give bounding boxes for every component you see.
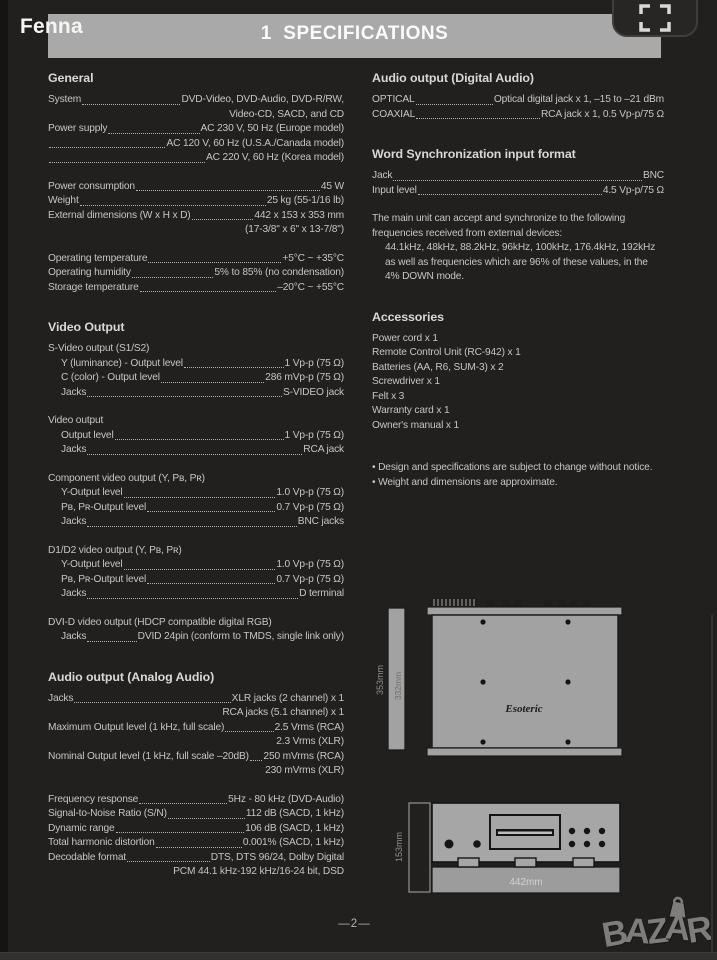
dot-leader [49,147,165,148]
spec-line: Frequency response5Hz - 80 kHz (DVD-Audi… [48,793,344,808]
photo-right-edge [711,615,713,955]
spec-line: Video-CD, SACD, and CD [48,108,344,123]
spacer [48,166,344,180]
spec-line: External dimensions (W x H x D)442 x 153… [48,209,344,224]
front-knob [473,840,481,848]
viewer-label: Fenna [20,15,83,39]
right-column: Audio output (Digital Audio)OPTICALOptic… [372,64,664,490]
rear-connectors [486,600,592,607]
dot-leader [393,180,642,181]
spec-line: JacksXLR jacks (2 channel) x 1 [48,692,344,707]
spec-text-line: frequencies received from external devic… [372,227,664,242]
spec-text-line: Component video output (Y, Pʙ, Pʀ) [48,472,344,487]
dot-leader [148,262,281,263]
header-bar: 1 SPECIFICATIONS [48,14,661,58]
spacer [48,238,344,252]
dot-leader [87,526,297,527]
spec-section: AccessoriesPower cord x 1Remote Control … [372,311,664,491]
spec-line: Dynamic range106 dB (SACD, 1 kHz) [48,822,344,837]
spec-text-line: Owner's manual x 1 [372,419,664,434]
dot-leader [147,511,275,512]
spec-line: 2.3 Vrms (XLR) [48,735,344,750]
spec-line: JackBNC [372,169,664,184]
dot-leader [74,702,230,703]
section-heading: Accessories [372,311,664,324]
dot-leader [124,497,276,498]
spacer [48,602,344,616]
spacer [372,198,664,212]
bazar-letter: R [685,909,713,952]
dot-leader [127,861,210,862]
spec-line: Power consumption45 W [48,180,344,195]
spec-line: RCA jacks (5.1 channel) x 1 [48,706,344,721]
spec-line: Operating humidity5% to 85% (no condensa… [48,266,344,281]
spec-line: SystemDVD-Video, DVD-Audio, DVD-R/RW, [48,93,344,108]
spec-line: AC 220 V, 60 Hz (Korea model) [48,151,344,166]
spec-text-line: Batteries (AA, R6, SUM-3) x 2 [372,361,664,376]
spec-line: Y (luminance) - Output level1 Vp-p (75 Ω… [48,357,344,372]
spec-text-line: 44.1kHz, 48kHz, 88.2kHz, 96kHz, 100kHz, … [372,241,664,256]
dot-leader [87,598,298,599]
page-left-edge [0,0,8,960]
spec-section: GeneralSystemDVD-Video, DVD-Audio, DVD-R… [48,72,344,295]
spec-line: COAXIALRCA jack x 1, 0.5 Vp-p/75 Ω [372,108,664,123]
spec-line: PCM 44.1 kHz-192 kHz/16-24 bit, DSD [48,865,344,880]
spec-line: Input level4.5 Vp-p/75 Ω [372,184,664,199]
dot-leader [147,583,275,584]
top-view-diagram: 353mm 332mm Esoteric [374,596,626,762]
spec-text-line: Warranty card x 1 [372,404,664,419]
dot-leader [136,190,320,191]
spec-line: AC 120 V, 60 Hz (U.S.A./Canada model) [48,137,344,152]
section-heading: Video Output [48,321,344,334]
dot-leader [87,396,282,397]
spec-line: JacksDVID 24pin (conform to TMDS, single… [48,630,344,645]
spec-line: JacksRCA jack [48,443,344,458]
dot-leader [140,291,277,292]
spec-line: Operating temperature+5°C ~ +35°C [48,252,344,267]
dot-leader [156,847,242,848]
spec-text-line: • Design and specifications are subject … [372,461,664,476]
esoteric-logo: Esoteric [504,703,542,715]
spec-line: Power supplyAC 230 V, 50 Hz (Europe mode… [48,122,344,137]
front-view-width-label: 442mm [509,877,542,888]
dot-leader [225,731,273,732]
spec-section: Word Synchronization input formatJackBNC… [372,148,664,285]
dot-leader [49,162,205,163]
front-view-height-label: 153mm [394,832,404,862]
bazar-logo: BAZAR [598,901,714,955]
top-view-height-label: 353mm [375,665,385,695]
dot-leader [184,367,284,368]
spec-line: Y-Output level1.0 Vp-p (75 Ω) [48,486,344,501]
spec-line: Storage temperature–20°C ~ +55°C [48,281,344,296]
spec-line: Maximum Output level (1 kHz, full scale)… [48,721,344,736]
dot-leader [139,803,227,804]
spec-text-line: 4% DOWN mode. [372,270,664,285]
spec-section: Audio output (Digital Audio)OPTICALOptic… [372,72,664,122]
spacer [48,400,344,414]
page-title: 1 SPECIFICATIONS [48,23,661,45]
spec-line: C (color) - Output level286 mVp-p (75 Ω) [48,371,344,386]
dot-leader [82,104,180,105]
bazar-letters: BAZAR [597,909,714,953]
spec-text-line: Power cord x 1 [372,332,664,347]
spec-line: Nominal Output level (1 kHz, full scale … [48,750,344,765]
spec-line: Weight25 kg (55-1/16 lb) [48,194,344,209]
spacer [48,530,344,544]
spec-text-line: Video output [48,414,344,429]
spec-text-line: The main unit can accept and synchronize… [372,212,664,227]
section-heading: General [48,72,344,85]
spacer [372,433,664,447]
dot-leader [132,277,214,278]
dot-leader [418,194,602,195]
spec-text-line: Felt x 3 [372,390,664,405]
dot-leader [80,205,266,206]
spec-line: Pʙ, Pʀ-Output level0.7 Vp-p (75 Ω) [48,501,344,516]
spec-text-line: as well as frequencies which are 96% of … [372,256,664,271]
feet [458,858,594,867]
spec-line: JacksD terminal [48,587,344,602]
spec-line: Pʙ, Pʀ-Output level0.7 Vp-p (75 Ω) [48,573,344,588]
spacer [372,447,664,461]
spec-text-line: D1/D2 video output (Y, Pʙ, Pʀ) [48,544,344,559]
spec-text-line: Remote Control Unit (RC-942) x 1 [372,346,664,361]
dot-leader [192,219,254,220]
dot-leader [250,760,263,761]
dot-leader [87,641,136,642]
spec-text-line: S-Video output (S1/S2) [48,342,344,357]
photo-bottom-edge [0,952,717,960]
dot-leader [416,104,493,105]
spec-line: Signal-to-Noise Ratio (S/N)112 dB (SACD,… [48,807,344,822]
spacer [48,779,344,793]
power-knob [445,840,454,849]
spec-line: Total harmonic distortion0.001% (SACD, 1… [48,836,344,851]
front-view-diagram: 153mm 442mm [392,797,624,899]
spec-line: Output level1 Vp-p (75 Ω) [48,429,344,444]
spec-section: Video OutputS-Video output (S1/S2)Y (lum… [48,321,344,645]
manual-page: 1 SPECIFICATIONS Fenna GeneralSystemDVD-… [0,0,717,960]
dot-leader [416,118,540,119]
fullscreen-button[interactable] [612,0,698,37]
dot-leader [115,439,284,440]
spec-line: Y-Output level1.0 Vp-p (75 Ω) [48,558,344,573]
spec-line: Decodable formatDTS, DTS 96/24, Dolby Di… [48,851,344,866]
spec-line: (17-3/8" x 6" x 13-7/8") [48,223,344,238]
spacer [48,458,344,472]
dot-leader [108,133,199,134]
dot-leader [116,832,245,833]
top-view-inner-height-label: 332mm [393,672,403,700]
left-column: GeneralSystemDVD-Video, DVD-Audio, DVD-R… [48,64,344,880]
spec-line: JacksS-VIDEO jack [48,386,344,401]
dot-leader [87,454,302,455]
dot-leader [124,569,276,570]
section-heading: Word Synchronization input format [372,148,664,161]
section-heading: Audio output (Analog Audio) [48,671,344,684]
dot-leader [168,818,245,819]
spec-text-line: • Weight and dimensions are approximate. [372,476,664,491]
page-number: —2— [48,918,661,930]
section-heading: Audio output (Digital Audio) [372,72,664,85]
spec-text-line: DVI-D video output (HDCP compatible digi… [48,616,344,631]
spec-line: OPTICALOptical digital jack x 1, –15 to … [372,93,664,108]
spec-line: 230 mVrms (XLR) [48,764,344,779]
fullscreen-icon [639,4,671,34]
dot-leader [161,382,264,383]
spec-text-line: Screwdriver x 1 [372,375,664,390]
spec-section: Audio output (Analog Audio)JacksXLR jack… [48,671,344,880]
spec-line: JacksBNC jacks [48,515,344,530]
